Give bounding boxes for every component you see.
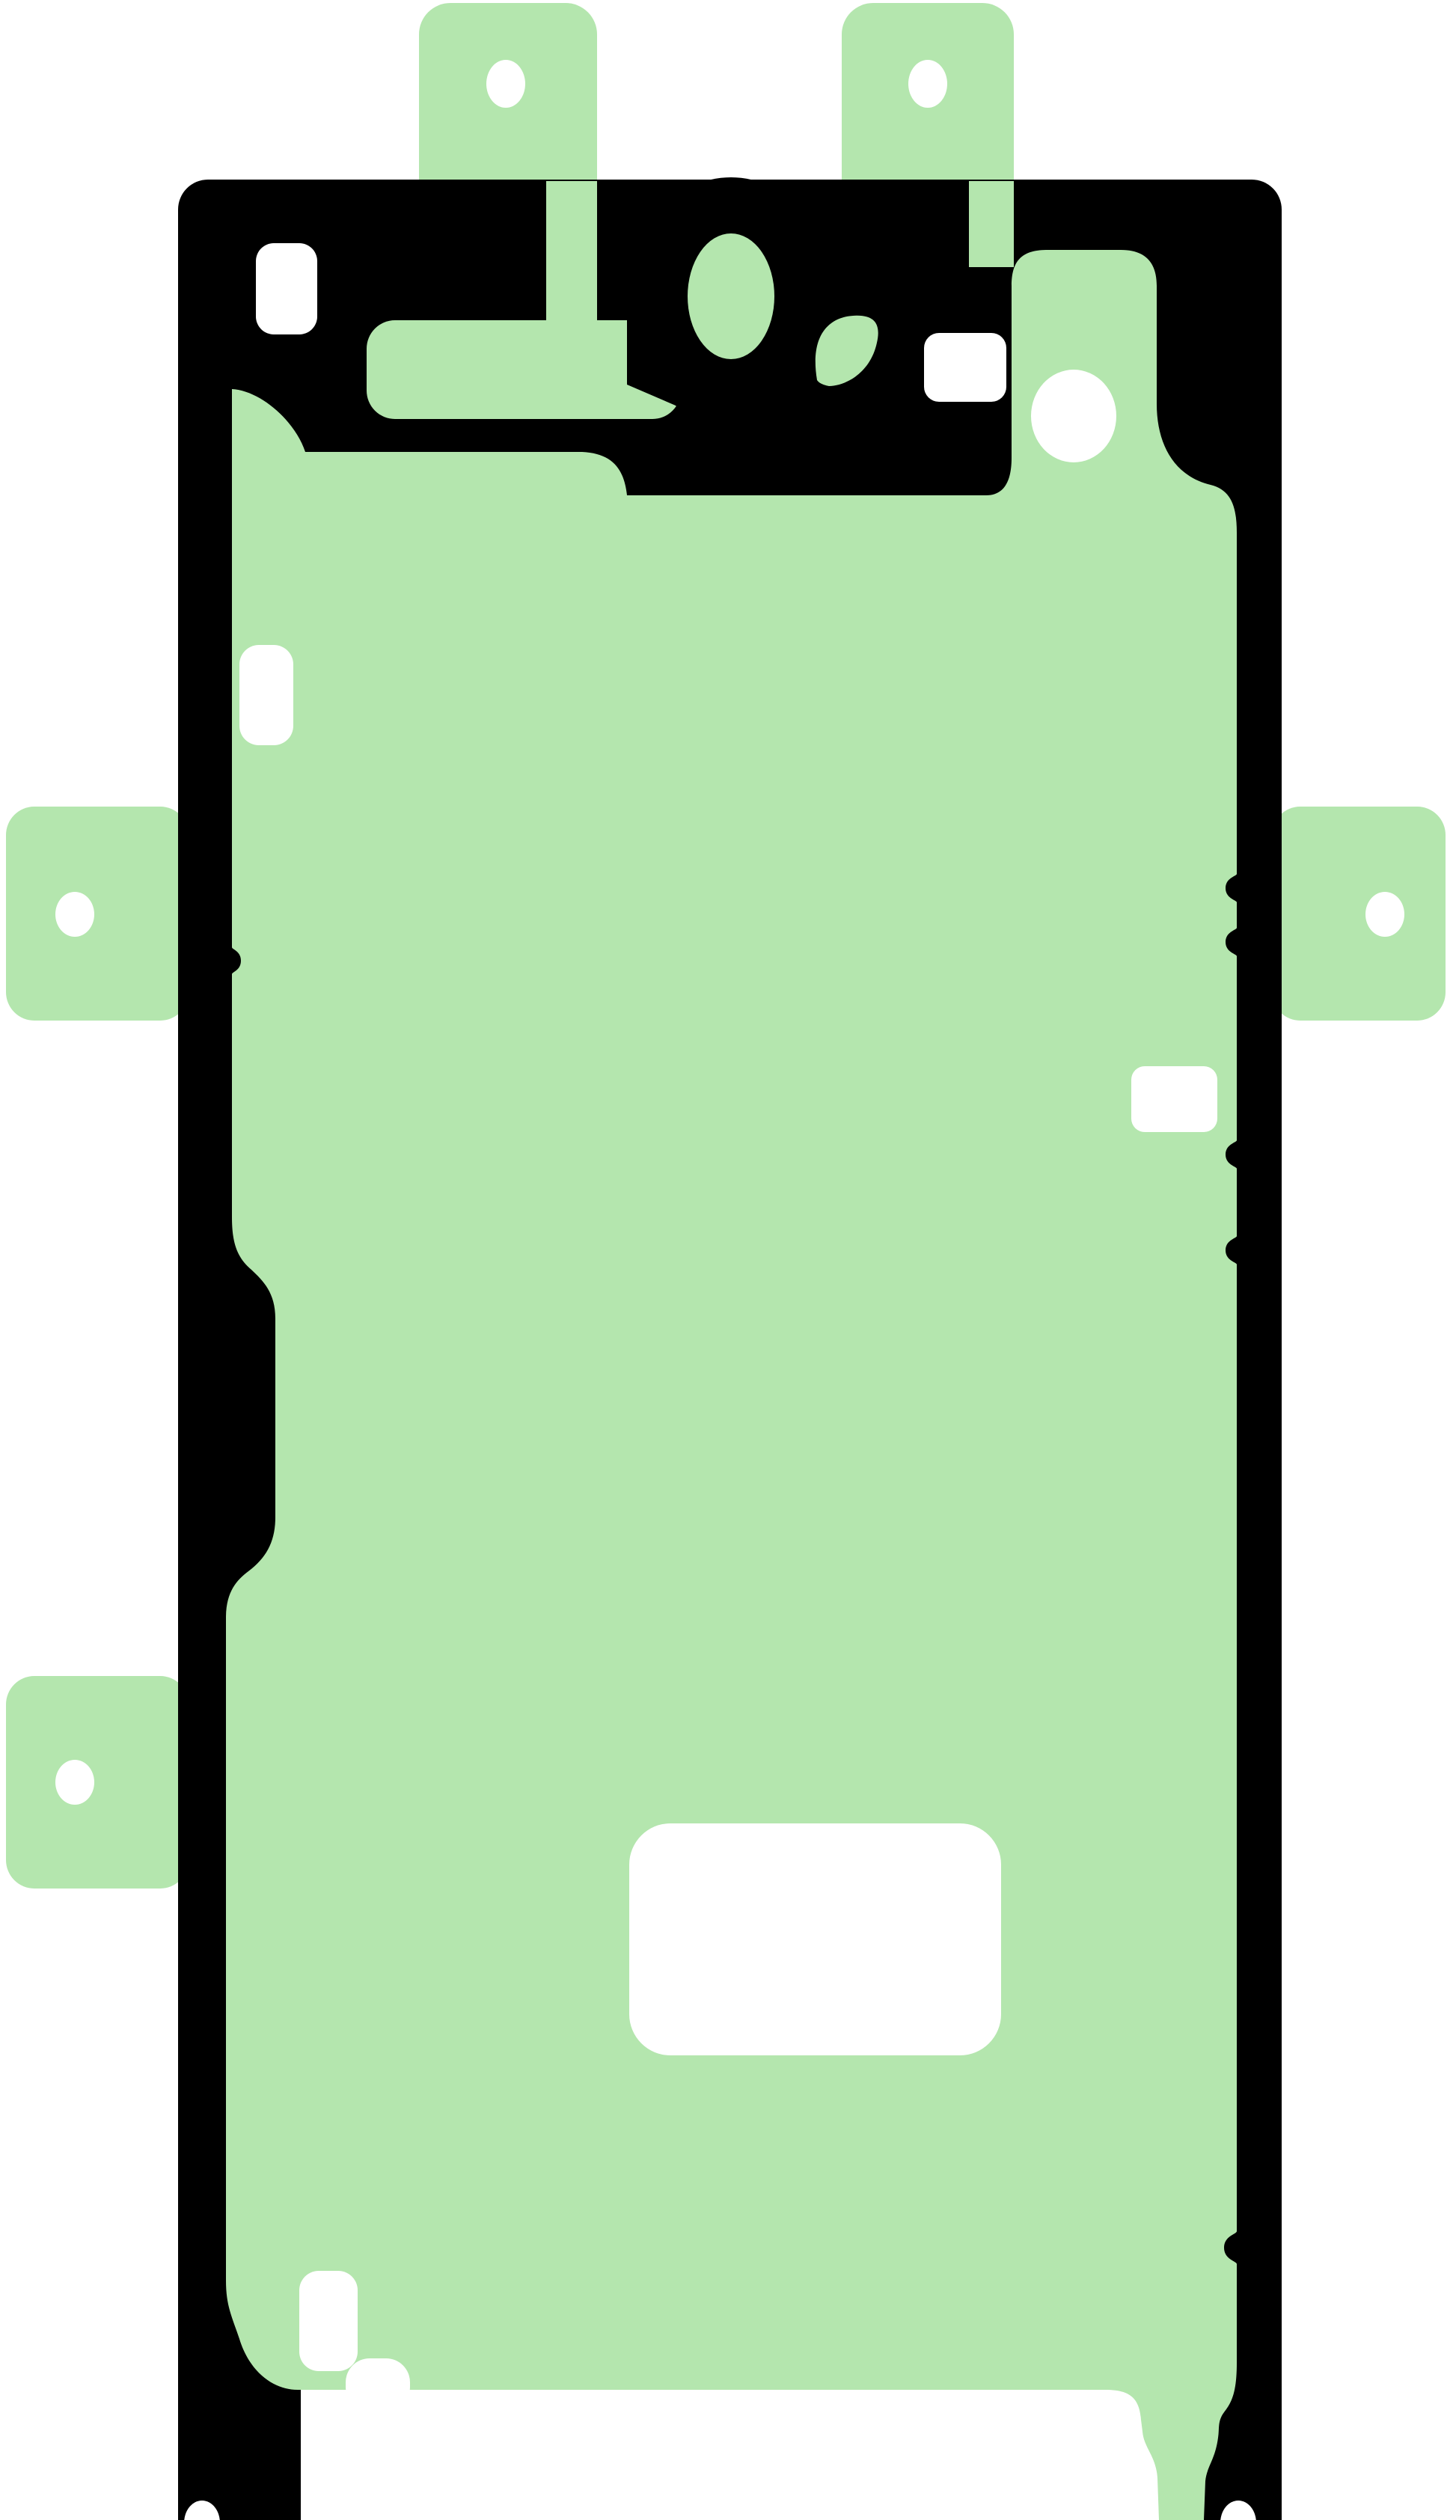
cutout-rect-large-bottom <box>629 1823 1001 2055</box>
tab2-bridge <box>969 181 1014 267</box>
cutout-rect-mid-right <box>1131 1066 1217 1132</box>
hole-tab-top-right <box>908 60 947 108</box>
cutout-rect-top-left <box>256 243 317 334</box>
adhesive-interior <box>226 250 1237 2520</box>
cutout-rect-upper-left <box>239 645 293 745</box>
hole-tab-top-left <box>486 60 525 108</box>
cutout-rect-top-center <box>924 333 1006 402</box>
camera-hole-green <box>688 233 774 359</box>
hole-tab-right <box>1365 892 1404 937</box>
hole-tab-left-lower <box>55 1760 94 1805</box>
tab-left-middle <box>6 807 189 1021</box>
cutout-circle-top-right <box>1031 370 1116 462</box>
product-image-canvas <box>0 0 1456 2520</box>
bottom-edge-bump <box>346 2358 410 2411</box>
tab-left-lower <box>6 1676 189 1889</box>
tab1-bridge <box>546 181 597 338</box>
hole-tab-left <box>55 892 94 937</box>
adhesive-sticker-figure <box>0 0 1456 2520</box>
cutout-rect-lower-left <box>299 2271 358 2371</box>
tab-right-middle <box>1272 807 1446 1021</box>
